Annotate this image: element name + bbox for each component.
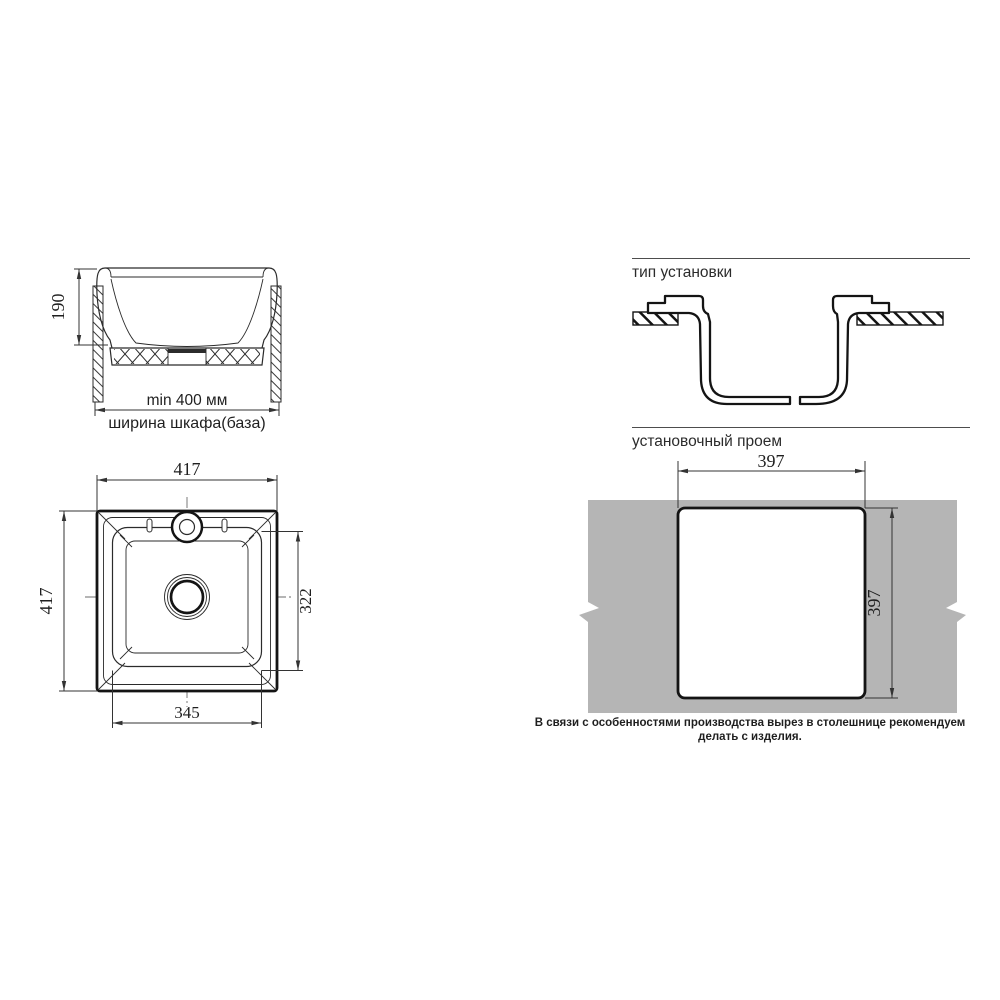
cabinet-walls <box>93 286 281 402</box>
cabinet-width-dimension: min 400 мм ширина шкафа(база) <box>95 392 279 432</box>
cutout-opening <box>678 508 865 698</box>
sink-rim-profile <box>648 296 889 404</box>
sink-section-outline <box>97 268 277 365</box>
min-width-label: min 400 мм <box>147 392 228 409</box>
cutout-drawing: 397 397 <box>565 455 985 745</box>
cabinet-width-label: ширина шкафа(база) <box>108 415 265 432</box>
production-note: В связи с особенностями производства выр… <box>530 717 970 745</box>
installation-type-header: тип установки <box>632 258 970 282</box>
top-view-drawing: 417 417 322 345 <box>40 455 320 755</box>
bowl-width-dimension-label: 345 <box>174 703 200 722</box>
width-dimension-label: 417 <box>174 459 201 479</box>
installation-type-title: тип установки <box>632 264 732 281</box>
cutout-section-title: установочный проем <box>632 433 782 450</box>
height-dimension-label: 417 <box>40 588 56 615</box>
drain-slot <box>168 349 206 353</box>
installation-type-drawing <box>630 290 975 415</box>
height-dimension: 417 <box>40 511 97 691</box>
faucet-hole <box>172 512 202 542</box>
depth-dimension-label: 190 <box>50 294 68 321</box>
cutout-height-label: 397 <box>864 590 884 617</box>
cutout-width-label: 397 <box>758 455 785 471</box>
sink-technical-drawing: 190 min 400 мм ширина шкафа(база) тип ус… <box>0 0 1000 1000</box>
cutout-section-header: установочный проем <box>632 427 970 451</box>
bowl-height-dimension-label: 322 <box>296 588 315 614</box>
section-view-drawing: 190 min 400 мм ширина шкафа(база) <box>50 252 310 438</box>
